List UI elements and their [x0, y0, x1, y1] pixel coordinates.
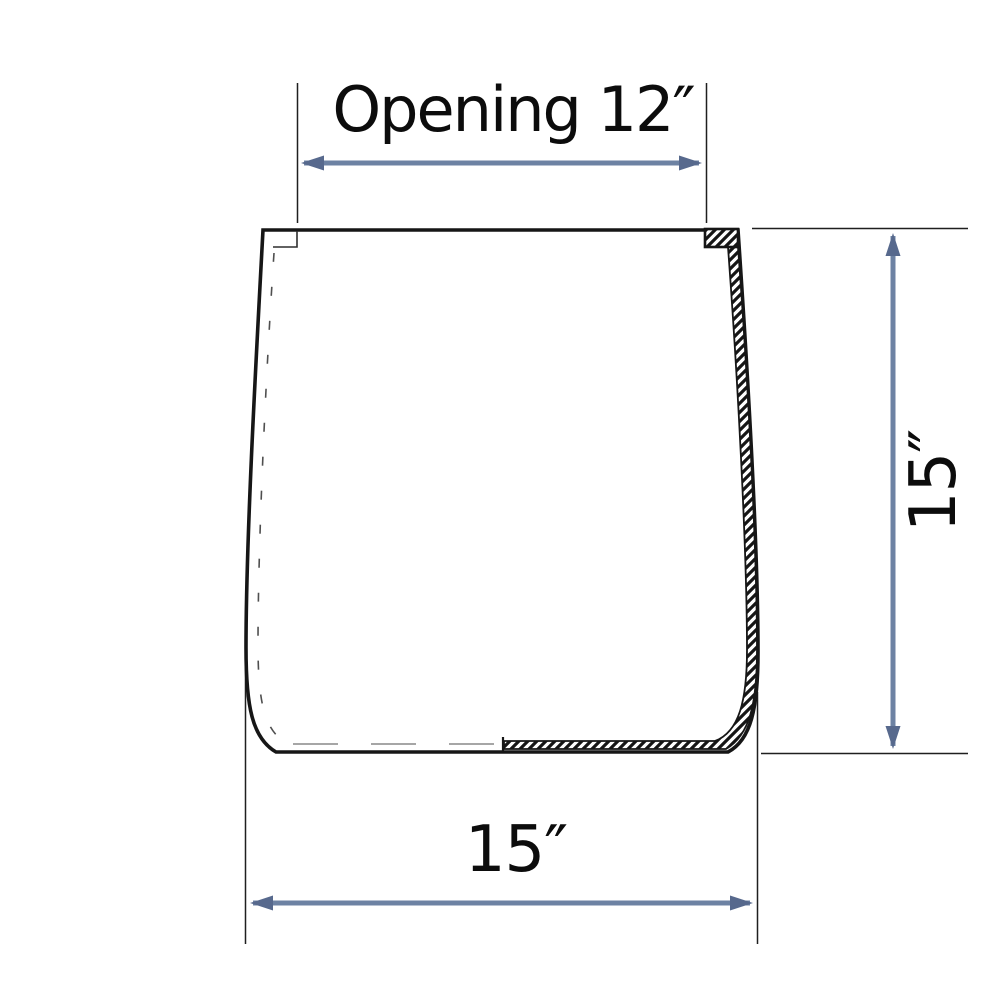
diagram-canvas: Opening 12″ 15″ 15″ — [0, 0, 1000, 1000]
height-dimension-label: 15″ — [902, 430, 966, 532]
pot-outline — [246, 230, 758, 752]
width-dimension-label: 15″ — [465, 818, 567, 882]
rim-lip-section-hatched — [705, 229, 738, 247]
opening-dimension-label: Opening 12″ — [332, 79, 693, 141]
